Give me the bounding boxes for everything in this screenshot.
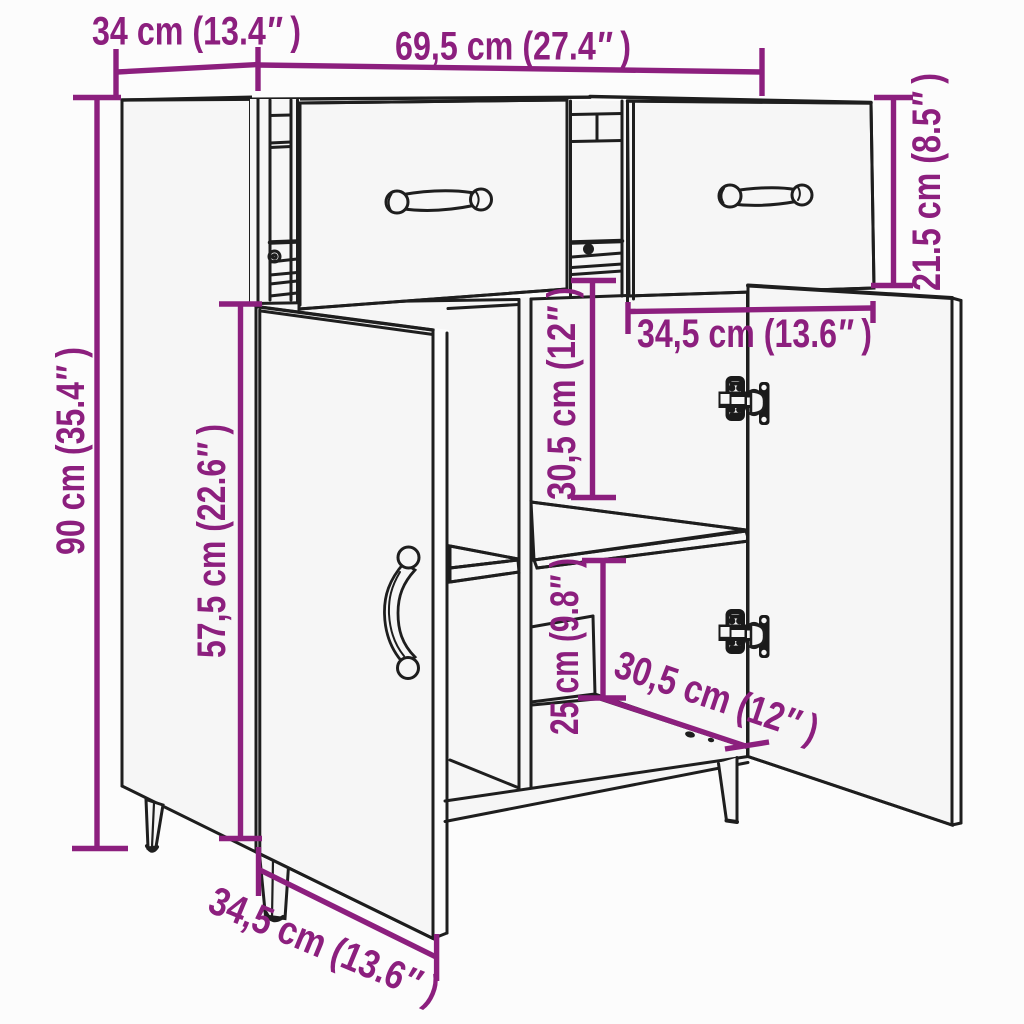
svg-text:30,5 cm (12″ ): 30,5 cm (12″ ) <box>540 287 584 500</box>
svg-text:34,5 cm (13.6″ ): 34,5 cm (13.6″ ) <box>637 312 872 356</box>
svg-text:90 cm (35.4″ ): 90 cm (35.4″ ) <box>49 347 93 555</box>
svg-text:21.5 cm (8.5″ ): 21.5 cm (8.5″ ) <box>905 73 949 291</box>
svg-text:69,5 cm (27.4″ ): 69,5 cm (27.4″ ) <box>395 25 631 69</box>
svg-text:25 cm (9.8″ ): 25 cm (9.8″ ) <box>543 558 587 735</box>
svg-text:34 cm (13.4″ ): 34 cm (13.4″ ) <box>92 10 301 54</box>
svg-text:57,5 cm (22.6″ ): 57,5 cm (22.6″ ) <box>190 424 234 658</box>
